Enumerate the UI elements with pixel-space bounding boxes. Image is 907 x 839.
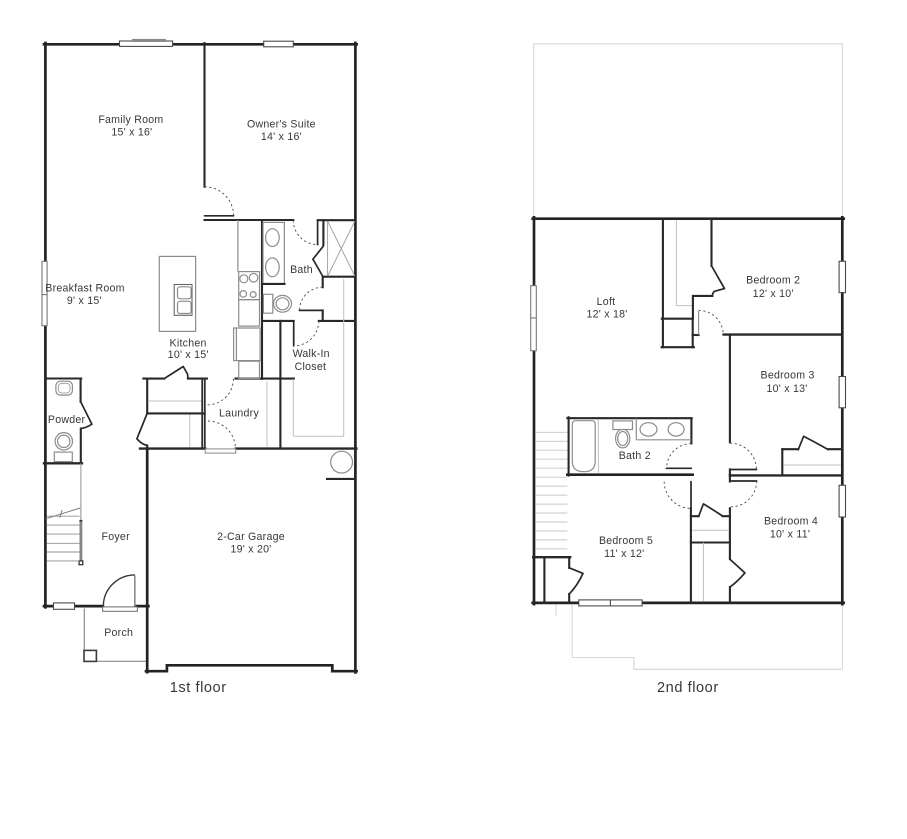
svg-text:Bedroom 4: Bedroom 4 (764, 516, 818, 528)
svg-text:2nd floor: 2nd floor (657, 680, 719, 696)
svg-text:Foyer: Foyer (102, 531, 131, 543)
svg-text:Bedroom 3: Bedroom 3 (761, 370, 815, 382)
svg-text:Kitchen: Kitchen (170, 338, 207, 350)
svg-text:Bath 2: Bath 2 (619, 450, 651, 462)
svg-text:10' x 15': 10' x 15' (168, 349, 209, 361)
svg-text:Bedroom 5: Bedroom 5 (599, 535, 653, 547)
svg-text:10' x 13': 10' x 13' (766, 383, 807, 395)
svg-text:Bath: Bath (290, 264, 313, 276)
svg-text:Laundry: Laundry (219, 408, 259, 420)
svg-text:Powder: Powder (48, 414, 86, 426)
svg-text:Breakfast Room: Breakfast Room (45, 282, 124, 294)
svg-text:9' x 15': 9' x 15' (67, 295, 102, 307)
svg-text:Walk-In: Walk-In (293, 348, 330, 360)
svg-text:19' x 20': 19' x 20' (230, 544, 271, 556)
svg-text:Bedroom 2: Bedroom 2 (746, 274, 800, 286)
svg-text:10' x 11': 10' x 11' (770, 529, 810, 541)
svg-text:Owner's Suite: Owner's Suite (247, 118, 316, 130)
svg-text:Porch: Porch (104, 627, 133, 639)
svg-text:12' x 10': 12' x 10' (753, 288, 794, 300)
svg-text:1st floor: 1st floor (170, 680, 227, 696)
svg-text:Loft: Loft (597, 296, 616, 308)
svg-text:14' x 16': 14' x 16' (261, 131, 302, 143)
svg-text:Closet: Closet (295, 361, 327, 373)
svg-text:11' x 12': 11' x 12' (604, 548, 644, 560)
svg-text:2-Car Garage: 2-Car Garage (217, 531, 285, 543)
svg-text:12' x 18': 12' x 18' (586, 309, 627, 321)
svg-text:Family Room: Family Room (98, 114, 163, 126)
svg-text:15' x 16': 15' x 16' (111, 127, 152, 139)
